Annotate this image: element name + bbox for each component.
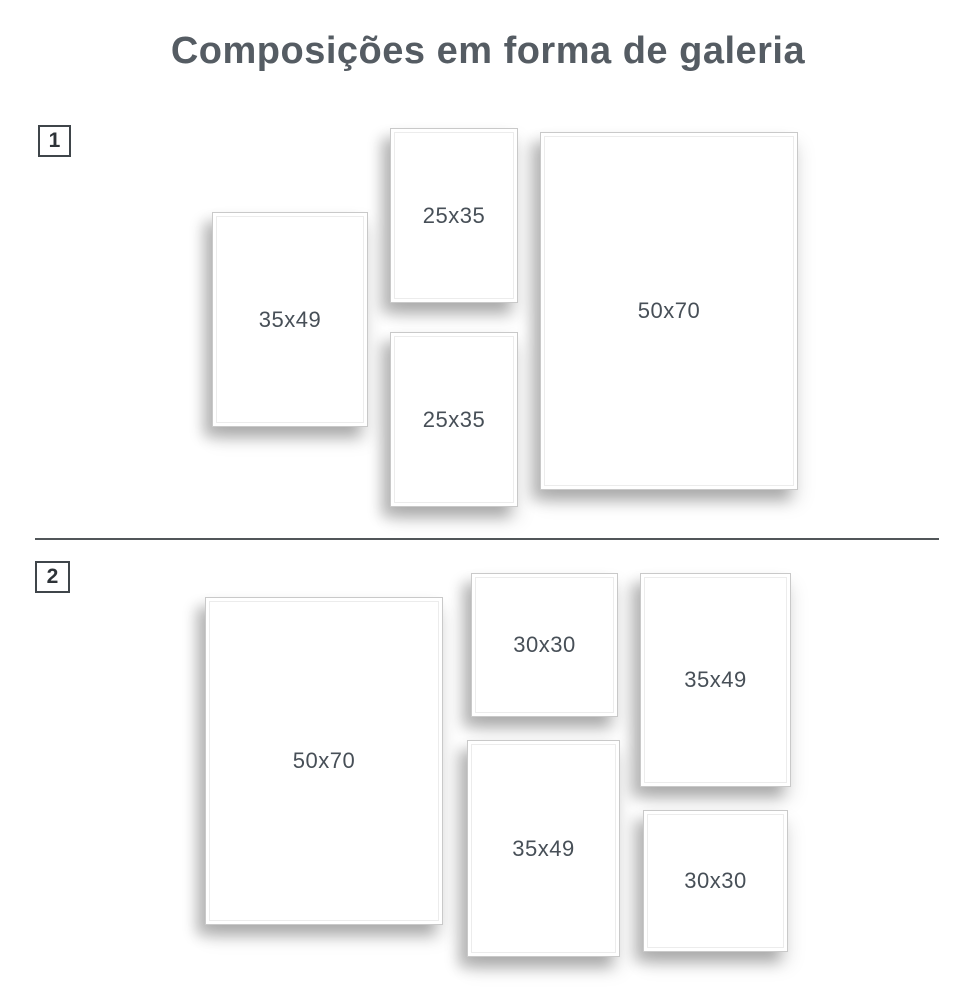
section-number: 2 — [47, 565, 59, 589]
section-number: 1 — [49, 129, 61, 153]
frame-size-label: 25x35 — [423, 407, 485, 433]
frame-35x49: 35x49 — [467, 740, 620, 957]
frame-size-label: 25x35 — [423, 203, 485, 229]
frame-25x35: 25x35 — [390, 128, 518, 303]
frame-size-label: 35x49 — [259, 307, 321, 333]
frame-50x70: 50x70 — [540, 132, 798, 490]
frame-size-label: 30x30 — [513, 632, 575, 658]
frame-size-label: 30x30 — [684, 868, 746, 894]
frame-30x30: 30x30 — [643, 810, 788, 952]
frame-size-label: 50x70 — [293, 748, 355, 774]
page-title: Composições em forma de galeria — [0, 30, 976, 73]
frame-30x30: 30x30 — [471, 573, 618, 717]
section-1-number-badge: 1 — [38, 125, 71, 157]
frame-35x49: 35x49 — [640, 573, 791, 787]
gallery-compositions-infographic: Composições em forma de galeria 1 35x49 … — [0, 0, 976, 1002]
section-divider — [35, 538, 939, 540]
section-2-number-badge: 2 — [35, 561, 70, 593]
frame-35x49: 35x49 — [212, 212, 368, 427]
frame-size-label: 50x70 — [638, 298, 700, 324]
frame-50x70: 50x70 — [205, 597, 443, 925]
frame-size-label: 35x49 — [512, 836, 574, 862]
frame-25x35: 25x35 — [390, 332, 518, 507]
frame-size-label: 35x49 — [684, 667, 746, 693]
